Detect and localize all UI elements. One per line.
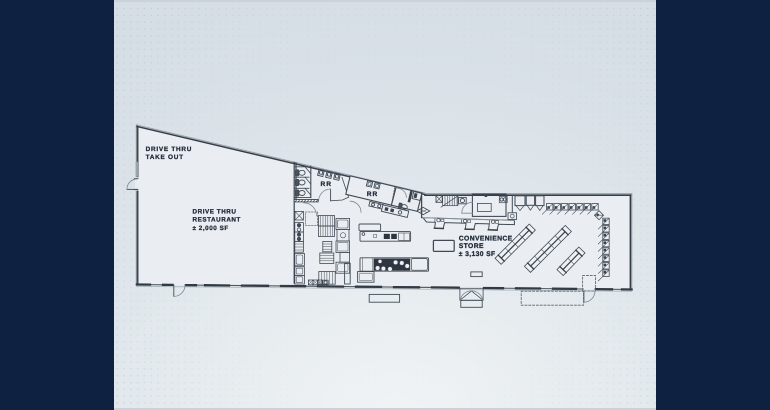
svg-text:± 2,000 SF: ± 2,000 SF [193,225,229,232]
svg-text:DRIVE THRU: DRIVE THRU [146,146,193,153]
svg-text:TAKE OUT: TAKE OUT [146,154,184,161]
svg-text:STORE: STORE [459,243,484,250]
svg-text:CONVENIENCE: CONVENIENCE [459,235,513,242]
svg-text:DRIVE THRU: DRIVE THRU [193,209,237,216]
svg-text:RR: RR [321,181,333,188]
svg-text:± 3,130 SF: ± 3,130 SF [459,251,496,258]
svg-text:RESTAURANT: RESTAURANT [193,216,241,223]
svg-text:RR: RR [367,191,379,198]
